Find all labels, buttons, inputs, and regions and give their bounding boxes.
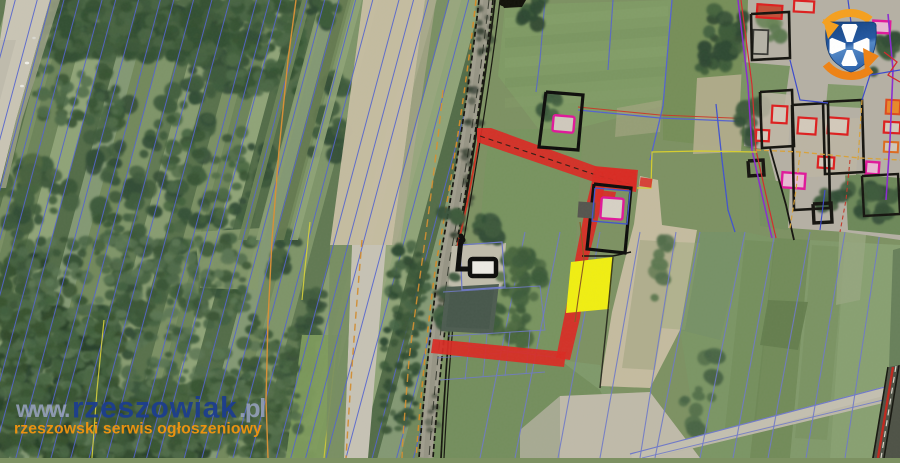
svg-text:.pl: .pl: [239, 393, 265, 423]
svg-text:www.: www.: [15, 396, 69, 422]
svg-text:rzeszowski serwis ogłoszeniowy: rzeszowski serwis ogłoszeniowy: [14, 421, 262, 438]
